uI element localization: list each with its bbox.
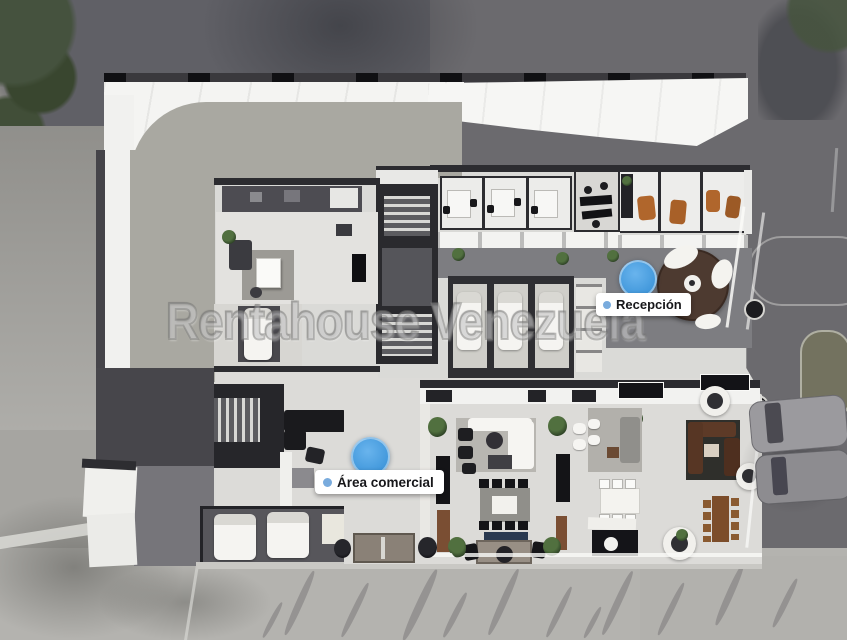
car-windshield (771, 457, 789, 496)
dining-chair-white (625, 479, 636, 489)
chair-row-wood (731, 498, 739, 540)
car (754, 449, 847, 506)
meeting-table-top (492, 496, 517, 514)
blue-dot-icon (603, 301, 611, 309)
coffee-table-tan (704, 444, 719, 457)
armchair-white (573, 423, 586, 434)
planter-white-top (707, 393, 723, 409)
label-reception[interactable]: Recepción (596, 293, 691, 316)
cabinet-dark (488, 455, 512, 469)
car (748, 394, 847, 454)
plant (222, 230, 236, 244)
sofa-white-l (468, 418, 532, 431)
label-reception-text: Recepción (616, 297, 682, 312)
door-opening (528, 390, 546, 402)
car-windshield (764, 402, 783, 443)
armchair-white (588, 435, 600, 445)
plant (622, 176, 632, 186)
sofa-black-chaise (284, 430, 306, 450)
corner-wall-white (87, 513, 138, 567)
chair (470, 199, 477, 207)
glass-front (428, 553, 762, 557)
counter-item (284, 190, 300, 202)
sofa-black (284, 410, 346, 432)
sofa-gray (620, 417, 640, 463)
wall-divider (482, 176, 485, 230)
tv-unit (352, 254, 366, 282)
armchair-orange (669, 199, 687, 224)
plant (556, 252, 569, 265)
wall-living-top (214, 178, 380, 185)
armchair-orange (706, 190, 720, 212)
chair (514, 198, 521, 206)
booth-seat (491, 189, 515, 217)
door-opening (426, 390, 452, 402)
wall-divider (526, 176, 529, 230)
plant (452, 248, 465, 261)
dining-table-wood (712, 496, 729, 542)
wall-divider (700, 170, 703, 233)
outer-wall-right (744, 170, 752, 234)
watermark: Rentahouse Venezuela (166, 292, 644, 352)
planter-round (744, 299, 765, 320)
plant (607, 250, 619, 262)
plant (428, 417, 447, 437)
door-opening (572, 390, 596, 402)
dining-chair-white (599, 479, 610, 489)
chair-row-wood (703, 500, 711, 542)
stairs (384, 196, 430, 236)
armchair-white (573, 439, 586, 450)
wall-divider (658, 170, 661, 233)
booth-seat (447, 190, 471, 218)
floorplan-render: Rentahouse Venezuela Recepción Área come… (0, 0, 847, 640)
coffee-table-round (486, 432, 503, 449)
corner-wall-white (83, 465, 138, 520)
stairwell-cap (376, 166, 438, 184)
armchair-white (588, 419, 600, 429)
booth-seat (534, 190, 558, 218)
armchair-orange (637, 195, 656, 221)
chair (443, 206, 450, 214)
side-table-brown (607, 447, 619, 458)
chair (487, 205, 494, 213)
chair-row (479, 479, 531, 488)
wall-face-white (436, 232, 620, 248)
dining-table-white (600, 488, 640, 514)
console-dark (336, 224, 352, 236)
office-chair (592, 220, 600, 228)
office-chair (584, 186, 592, 194)
window-dark (618, 382, 664, 399)
lane-marking-loop (748, 236, 847, 306)
reception-desk-dot (689, 280, 695, 286)
sofa-dark (229, 240, 252, 270)
dining-chair-white (612, 479, 623, 489)
armchair-black (458, 428, 473, 441)
entry-table-line (381, 537, 385, 559)
parapet-left-trim (96, 150, 105, 385)
plant-dark (334, 539, 351, 558)
sofa-brown (688, 422, 703, 474)
chair (531, 206, 538, 214)
tree-foliage-right (758, 0, 847, 120)
coffee-table (256, 258, 281, 288)
label-commercial[interactable]: Área comercial (315, 470, 444, 494)
armchair-black (458, 446, 473, 459)
service-wing-dark (96, 368, 214, 470)
label-commercial-text: Área comercial (337, 475, 434, 490)
plant (451, 539, 466, 558)
counter-white-2 (588, 517, 636, 531)
plant (676, 529, 688, 541)
spa-bed (267, 512, 309, 558)
blue-dot-icon (323, 478, 332, 487)
counter-item (250, 192, 262, 202)
fridge (330, 188, 358, 208)
plate-white (604, 537, 618, 551)
plant (548, 416, 567, 436)
chair-row (479, 521, 531, 530)
plant-dark (418, 537, 437, 558)
display-cabinet-tall (556, 454, 570, 502)
armchair-black (462, 463, 476, 474)
office-chair (600, 182, 608, 190)
spa-bed (214, 514, 256, 560)
